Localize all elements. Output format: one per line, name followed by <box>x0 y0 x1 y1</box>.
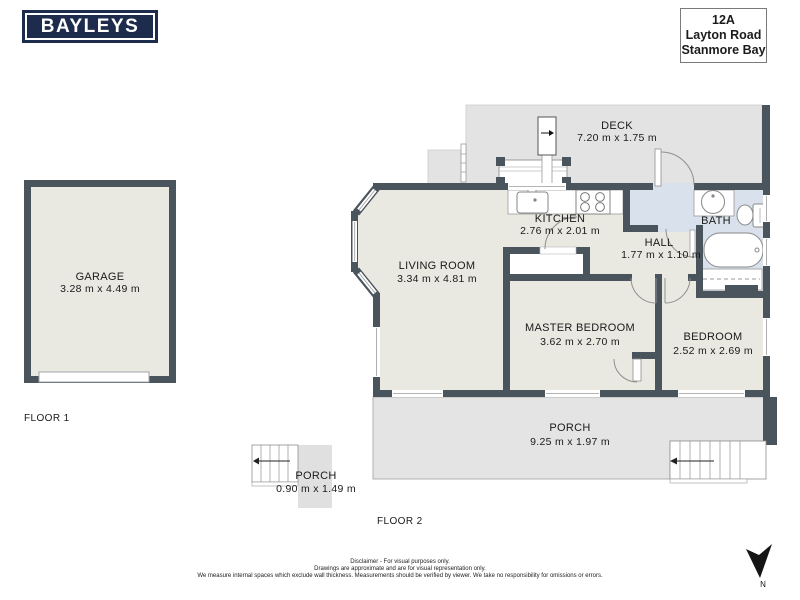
wardrobe-icon <box>701 269 762 291</box>
garage-label: GARAGE <box>76 272 125 283</box>
deck-label: DECK <box>601 121 633 132</box>
address-box: 12A Layton Road Stanmore Bay <box>680 8 767 63</box>
floor1-label: FLOOR 1 <box>24 413 70 424</box>
bedroom-dims: 2.52 m x 2.69 m <box>673 346 753 357</box>
deck-dims: 7.20 m x 1.75 m <box>577 133 657 144</box>
bath-sink-icon <box>694 190 734 216</box>
porch2-dims: 9.25 m x 1.97 m <box>530 437 610 448</box>
porch1-label: PORCH <box>295 471 336 482</box>
garage-dims: 3.28 m x 4.49 m <box>60 284 140 295</box>
living-room-dims: 3.34 m x 4.81 m <box>397 274 477 285</box>
porch1-dims: 0.90 m x 1.49 m <box>276 484 356 495</box>
address-line1: 12A <box>712 13 735 28</box>
hall-label: HALL <box>645 238 674 249</box>
deck-screen <box>461 144 466 182</box>
bath-label: BATH <box>701 216 731 227</box>
deck-area <box>428 105 762 187</box>
bayleys-logo-border: BAYLEYS <box>25 13 155 40</box>
kitchen-dims: 2.76 m x 2.01 m <box>520 226 600 237</box>
disclaimer-line1: Disclaimer - For visual purposes only. <box>350 559 450 566</box>
disclaimer-line2: Drawings are approximate and are for vis… <box>314 566 486 573</box>
address-line3: Stanmore Bay <box>681 43 765 58</box>
bathtub-icon <box>704 233 763 267</box>
bayleys-logo-text: BAYLEYS <box>41 16 140 38</box>
north-arrow-icon <box>746 544 772 578</box>
kitchen-bench-icon <box>496 157 571 187</box>
living-room-label: LIVING ROOM <box>399 261 476 272</box>
master-bedroom-label: MASTER BEDROOM <box>525 323 635 334</box>
nook-door-leaf <box>633 359 641 381</box>
porch-side-wall <box>763 397 777 445</box>
floorplan-page: BAYLEYS 12A Layton Road Stanmore Bay GAR… <box>0 0 800 600</box>
garage-door <box>39 372 149 382</box>
stove-icon <box>576 190 610 214</box>
bayleys-logo: BAYLEYS <box>22 10 158 43</box>
north-label: N <box>760 580 766 589</box>
floor2-label: FLOOR 2 <box>377 516 423 527</box>
bedroom-label: BEDROOM <box>684 332 743 343</box>
hall-dims: 1.77 m x 1.10 m <box>621 250 701 261</box>
deck-side-wall <box>762 105 770 187</box>
disclaimer-line3: We measure internal spaces which exclude… <box>197 573 602 580</box>
deck-door-leaf <box>655 149 661 186</box>
stairs-floor2 <box>670 441 766 483</box>
master-bedroom-dims: 3.62 m x 2.70 m <box>540 337 620 348</box>
porch2-label: PORCH <box>549 423 590 434</box>
address-line2: Layton Road <box>686 28 762 43</box>
kitchen-label: KITCHEN <box>535 214 585 225</box>
floorplan-drawing <box>0 0 800 600</box>
